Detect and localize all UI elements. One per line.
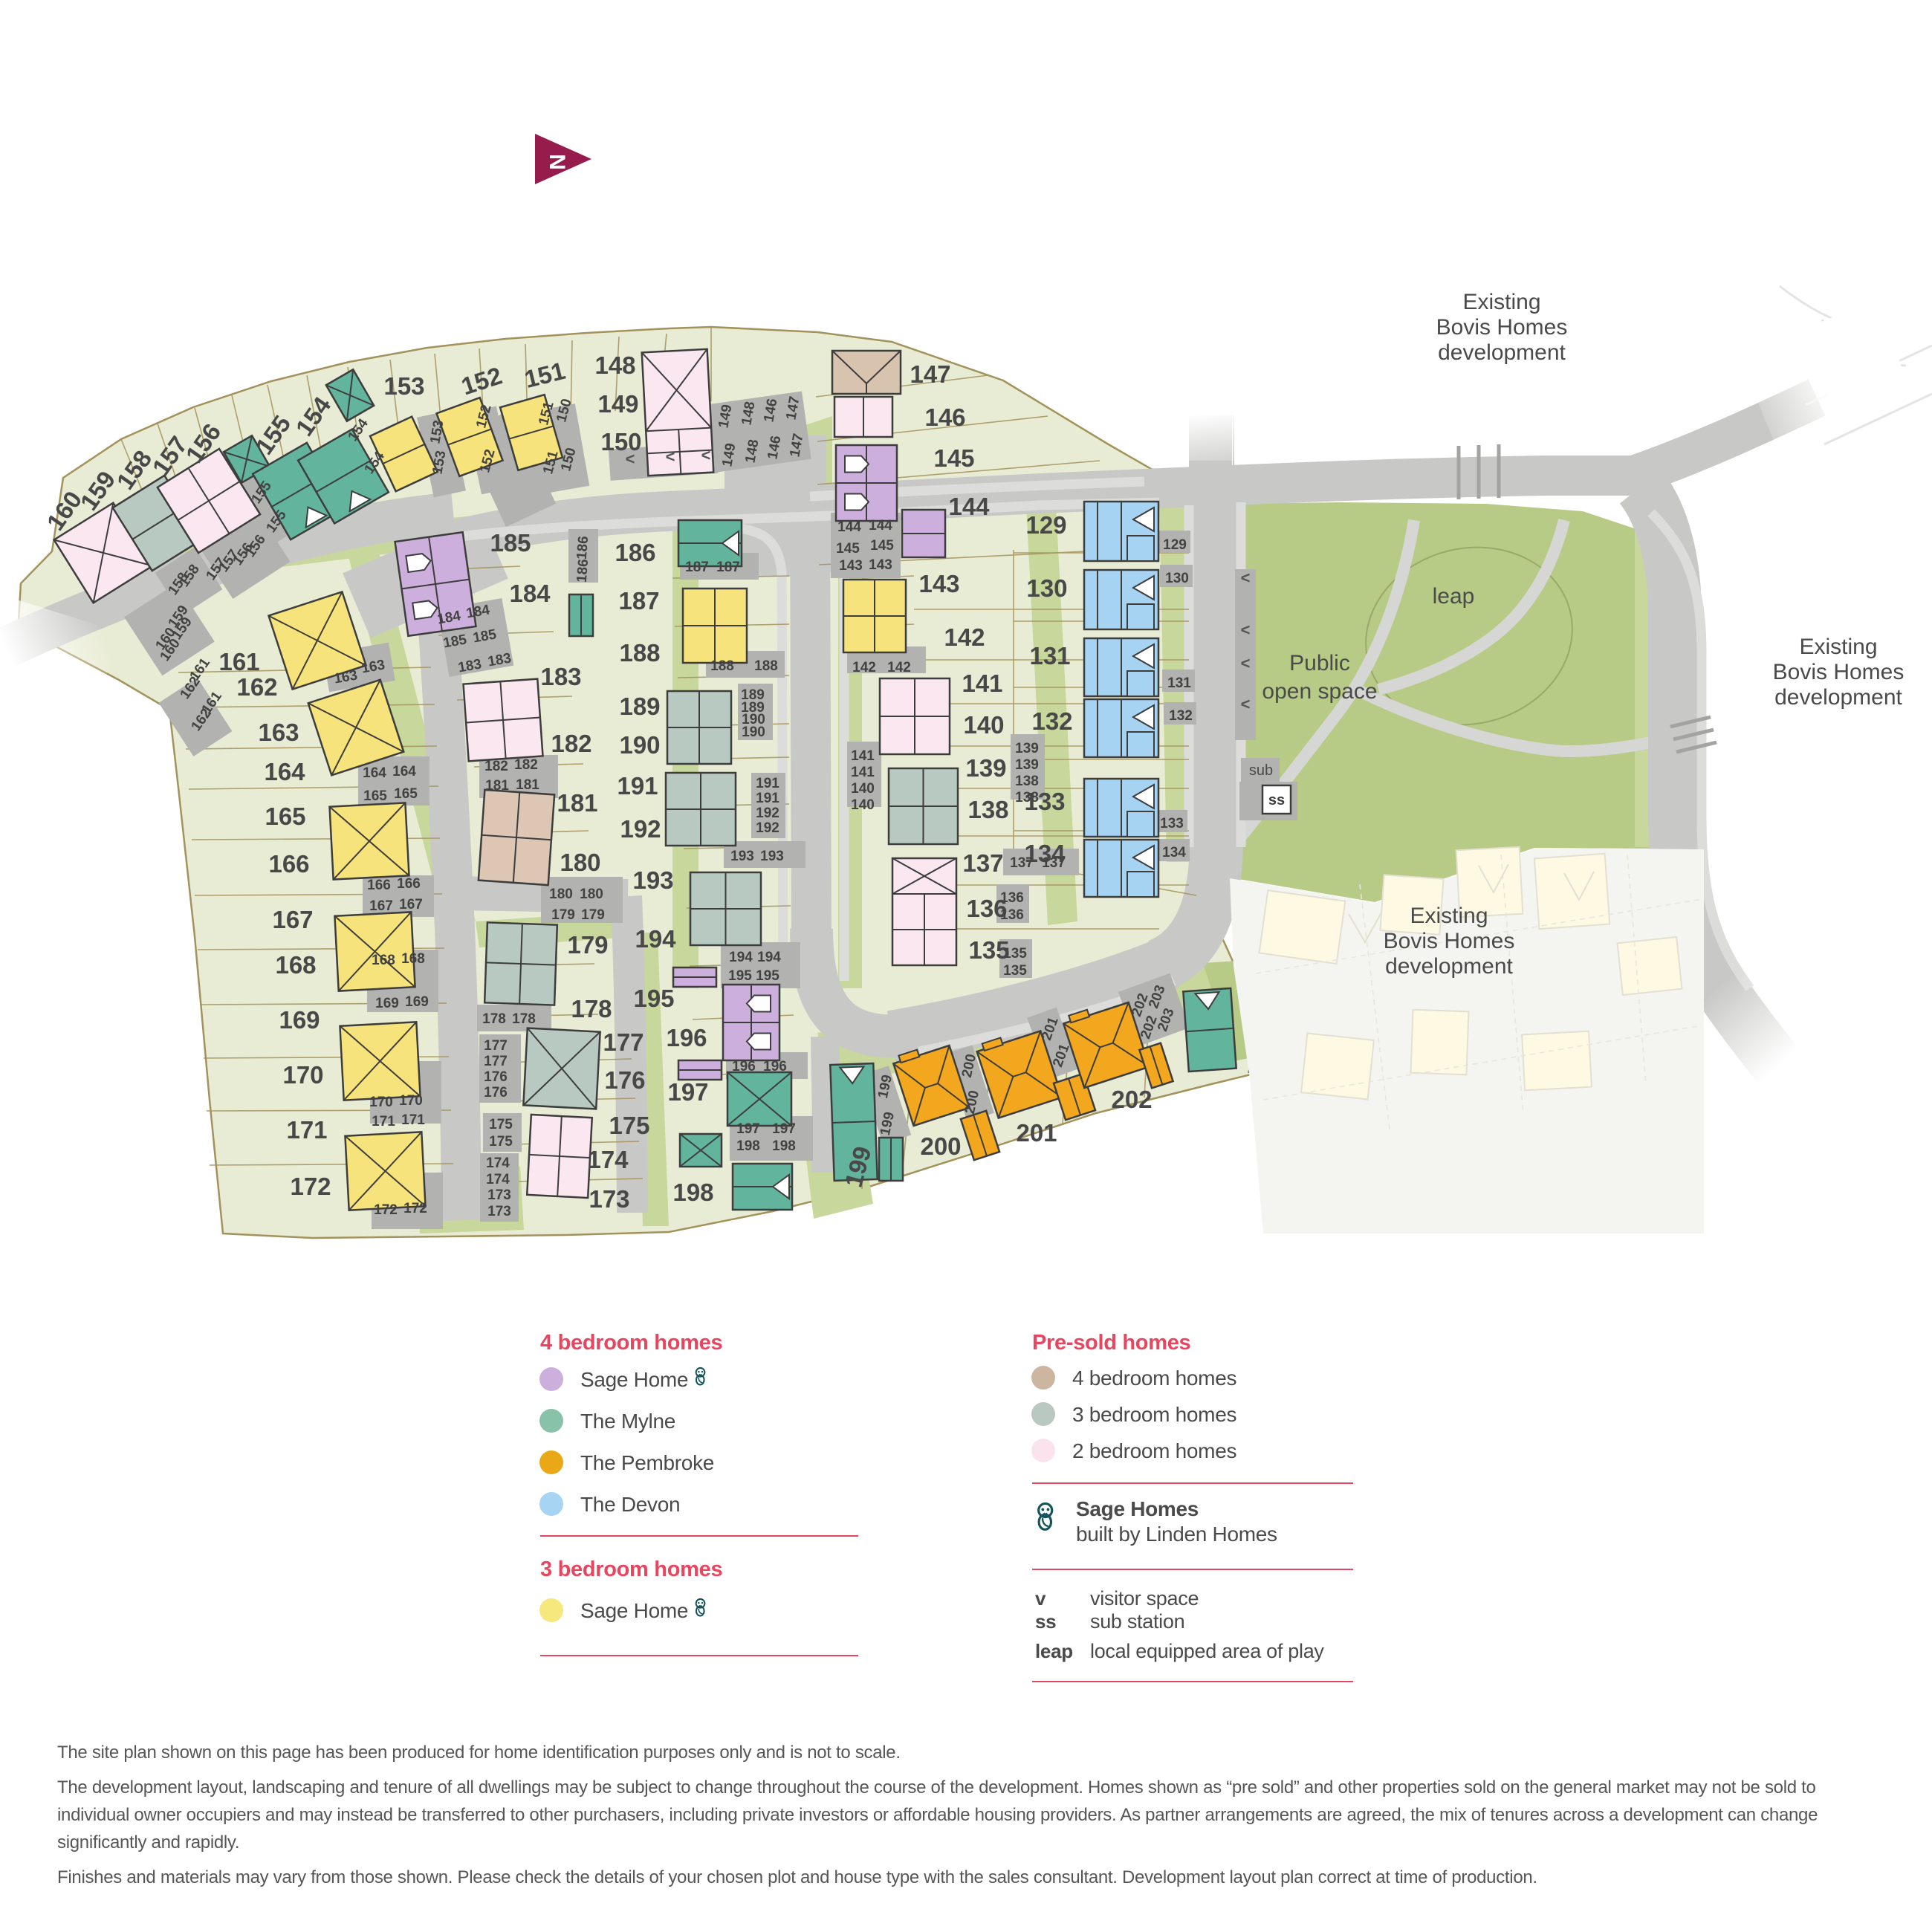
svg-text:166: 166 xyxy=(268,850,309,878)
svg-text:leap: leap xyxy=(1433,584,1475,609)
svg-text:4 bedroom homes: 4 bedroom homes xyxy=(540,1331,722,1355)
svg-text:180: 180 xyxy=(549,886,573,902)
svg-text:162: 162 xyxy=(236,673,277,701)
svg-text:164: 164 xyxy=(392,764,416,779)
svg-text:The Devon: The Devon xyxy=(580,1493,680,1516)
svg-text:194: 194 xyxy=(729,950,753,965)
svg-text:sub station: sub station xyxy=(1090,1610,1184,1633)
svg-text:177: 177 xyxy=(603,1028,644,1056)
svg-text:143: 143 xyxy=(918,570,959,597)
svg-text:3 bedroom homes: 3 bedroom homes xyxy=(1072,1403,1236,1426)
svg-text:139: 139 xyxy=(965,754,1006,782)
svg-text:186: 186 xyxy=(615,539,655,566)
svg-text:167: 167 xyxy=(399,897,423,912)
svg-text:131: 131 xyxy=(1029,642,1070,670)
svg-text:163: 163 xyxy=(258,719,299,746)
svg-text:175: 175 xyxy=(609,1112,649,1139)
svg-text:194: 194 xyxy=(635,925,676,953)
svg-text:Sage Homes: Sage Homes xyxy=(1076,1497,1199,1520)
svg-text:143: 143 xyxy=(869,557,892,573)
svg-text:130: 130 xyxy=(1026,574,1067,602)
svg-text:165: 165 xyxy=(394,786,418,802)
svg-text:3 bedroom homes: 3 bedroom homes xyxy=(540,1557,722,1581)
svg-text:178: 178 xyxy=(512,1011,536,1027)
svg-text:196: 196 xyxy=(763,1059,787,1074)
svg-text:172: 172 xyxy=(403,1201,427,1216)
svg-text:198: 198 xyxy=(772,1138,796,1154)
svg-text:Existing: Existing xyxy=(1462,290,1540,314)
svg-text:168: 168 xyxy=(372,953,395,968)
svg-text:167: 167 xyxy=(272,906,313,933)
svg-text:The Pembroke: The Pembroke xyxy=(580,1451,714,1474)
svg-text:182: 182 xyxy=(551,730,591,757)
svg-text:2 bedroom homes: 2 bedroom homes xyxy=(1072,1439,1236,1462)
svg-text:145: 145 xyxy=(933,444,974,472)
svg-text:Existing: Existing xyxy=(1799,635,1877,659)
svg-text:201: 201 xyxy=(1016,1119,1057,1147)
svg-text:165: 165 xyxy=(363,788,387,804)
svg-text:148: 148 xyxy=(594,351,635,379)
svg-text:135: 135 xyxy=(1003,946,1027,962)
svg-text:Bovis Homes: Bovis Homes xyxy=(1436,315,1568,340)
svg-text:166: 166 xyxy=(367,878,391,893)
svg-text:186: 186 xyxy=(574,558,592,583)
svg-text:The site plan shown on this pa: The site plan shown on this page has bee… xyxy=(57,1743,901,1763)
svg-text:172: 172 xyxy=(374,1202,398,1218)
svg-text:168: 168 xyxy=(401,951,425,967)
svg-text:164: 164 xyxy=(363,765,386,781)
svg-text:138: 138 xyxy=(1015,790,1039,805)
svg-text:138: 138 xyxy=(967,796,1008,823)
svg-text:142: 142 xyxy=(944,623,985,651)
svg-text:174: 174 xyxy=(486,1155,510,1171)
svg-text:141: 141 xyxy=(851,748,875,764)
svg-text:142: 142 xyxy=(852,660,876,675)
svg-text:Sage Home: Sage Home xyxy=(580,1599,688,1622)
svg-text:Pre-sold homes: Pre-sold homes xyxy=(1032,1331,1190,1355)
svg-text:172: 172 xyxy=(290,1173,331,1200)
svg-text:186: 186 xyxy=(574,535,592,560)
svg-text:140: 140 xyxy=(851,781,875,797)
svg-text:193: 193 xyxy=(730,849,754,864)
svg-text:137: 137 xyxy=(1042,855,1066,871)
svg-text:<: < xyxy=(626,450,635,468)
svg-text:170: 170 xyxy=(369,1095,393,1110)
svg-text:195: 195 xyxy=(756,968,779,984)
svg-text:171: 171 xyxy=(372,1114,395,1129)
svg-text:187: 187 xyxy=(685,560,709,575)
svg-text:193: 193 xyxy=(760,849,784,864)
svg-text:174: 174 xyxy=(486,1172,510,1187)
svg-text:190: 190 xyxy=(742,724,765,740)
svg-text:sub: sub xyxy=(1249,762,1273,779)
svg-text:140: 140 xyxy=(851,797,875,813)
svg-text:161: 161 xyxy=(218,648,259,675)
svg-text:170: 170 xyxy=(282,1061,323,1089)
svg-text:individual owner occupiers and: individual owner occupiers and may inste… xyxy=(57,1805,1818,1825)
svg-text:173: 173 xyxy=(589,1185,629,1213)
svg-text:183: 183 xyxy=(540,663,581,690)
svg-text:195: 195 xyxy=(633,985,674,1012)
svg-text:development: development xyxy=(1774,685,1902,710)
svg-text:<: < xyxy=(701,446,711,464)
svg-text:182: 182 xyxy=(514,757,538,773)
svg-text:<: < xyxy=(1241,654,1251,672)
svg-text:196: 196 xyxy=(666,1024,707,1051)
svg-text:145: 145 xyxy=(870,538,894,554)
svg-text:191: 191 xyxy=(756,791,779,806)
svg-text:Bovis Homes: Bovis Homes xyxy=(1773,660,1905,684)
svg-text:171: 171 xyxy=(401,1112,425,1128)
svg-text:Bovis Homes: Bovis Homes xyxy=(1384,929,1515,953)
svg-text:Public: Public xyxy=(1289,651,1350,675)
svg-text:139: 139 xyxy=(1015,741,1039,756)
svg-text:178: 178 xyxy=(482,1011,506,1027)
svg-text:140: 140 xyxy=(963,711,1004,739)
svg-text:180: 180 xyxy=(580,886,603,902)
svg-text:175: 175 xyxy=(489,1134,513,1150)
svg-text:173: 173 xyxy=(487,1187,511,1203)
svg-text:143: 143 xyxy=(839,558,863,574)
svg-text:open space: open space xyxy=(1262,679,1377,704)
svg-text:179: 179 xyxy=(551,907,575,923)
svg-text:ss: ss xyxy=(1035,1610,1056,1633)
svg-text:168: 168 xyxy=(275,951,316,979)
svg-text:<: < xyxy=(1241,620,1251,639)
svg-text:192: 192 xyxy=(756,805,779,821)
svg-text:200: 200 xyxy=(920,1132,961,1160)
svg-text:169: 169 xyxy=(405,994,429,1010)
svg-text:198: 198 xyxy=(736,1138,760,1154)
svg-text:ss: ss xyxy=(1268,792,1285,808)
svg-text:181: 181 xyxy=(516,777,539,793)
svg-text:139: 139 xyxy=(1015,757,1039,773)
svg-text:194: 194 xyxy=(757,950,781,965)
svg-text:The development layout, landsc: The development layout, landscaping and … xyxy=(57,1777,1816,1798)
svg-text:170: 170 xyxy=(399,1093,423,1109)
svg-text:193: 193 xyxy=(632,866,673,894)
svg-text:188: 188 xyxy=(710,658,734,674)
svg-text:136: 136 xyxy=(1000,890,1024,906)
svg-text:190: 190 xyxy=(619,731,660,759)
svg-text:188: 188 xyxy=(754,658,778,674)
svg-text:Existing: Existing xyxy=(1410,904,1488,928)
svg-text:145: 145 xyxy=(836,541,860,557)
svg-text:169: 169 xyxy=(375,996,399,1011)
svg-text:built by Linden Homes: built by Linden Homes xyxy=(1076,1523,1277,1546)
svg-text:153: 153 xyxy=(383,372,424,400)
svg-text:significantly and rapidly.: significantly and rapidly. xyxy=(57,1832,239,1852)
svg-text:132: 132 xyxy=(1031,707,1072,735)
svg-text:192: 192 xyxy=(620,815,661,843)
svg-text:191: 191 xyxy=(756,776,779,791)
svg-text:197: 197 xyxy=(736,1121,760,1137)
svg-text:179: 179 xyxy=(567,931,608,959)
svg-text:141: 141 xyxy=(962,670,1002,697)
svg-text:144: 144 xyxy=(948,493,990,520)
svg-text:191: 191 xyxy=(617,772,658,800)
svg-text:local equipped area of play: local equipped area of play xyxy=(1090,1640,1324,1662)
svg-text:Finishes and materials may var: Finishes and materials may vary from tho… xyxy=(57,1867,1537,1887)
svg-text:181: 181 xyxy=(557,789,597,817)
svg-text:146: 146 xyxy=(924,403,965,431)
svg-text:150: 150 xyxy=(600,428,641,456)
svg-text:136: 136 xyxy=(1000,907,1024,923)
svg-text:177: 177 xyxy=(484,1038,508,1054)
svg-text:187: 187 xyxy=(716,560,740,575)
svg-text:184: 184 xyxy=(509,580,551,607)
svg-text:4 bedroom homes: 4 bedroom homes xyxy=(1072,1367,1236,1390)
svg-text:180: 180 xyxy=(560,849,600,876)
svg-text:<: < xyxy=(666,447,675,466)
svg-text:182: 182 xyxy=(484,759,508,774)
svg-text:129: 129 xyxy=(1025,511,1066,539)
svg-text:179: 179 xyxy=(581,907,605,923)
svg-text:167: 167 xyxy=(369,898,393,914)
svg-text:144: 144 xyxy=(837,519,861,535)
svg-text:development: development xyxy=(1385,954,1513,979)
svg-text:138: 138 xyxy=(1015,774,1039,789)
svg-text:164: 164 xyxy=(264,758,305,785)
svg-text:181: 181 xyxy=(485,778,509,794)
svg-text:141: 141 xyxy=(851,765,875,780)
svg-text:176: 176 xyxy=(604,1066,645,1094)
svg-text:137: 137 xyxy=(962,849,1003,877)
svg-text:197: 197 xyxy=(772,1121,796,1137)
svg-text:175: 175 xyxy=(489,1117,513,1132)
svg-text:132: 132 xyxy=(1169,708,1193,724)
svg-text:visitor space: visitor space xyxy=(1090,1587,1199,1610)
svg-text:177: 177 xyxy=(484,1054,508,1069)
svg-text:134: 134 xyxy=(1162,845,1186,860)
svg-text:149: 149 xyxy=(597,390,638,418)
svg-text:The Mylne: The Mylne xyxy=(580,1410,675,1433)
svg-text:133: 133 xyxy=(1160,816,1184,832)
svg-text:185: 185 xyxy=(490,529,531,557)
svg-text:137: 137 xyxy=(1010,855,1034,871)
svg-text:202: 202 xyxy=(1111,1086,1152,1113)
svg-text:195: 195 xyxy=(728,968,752,984)
svg-text:189: 189 xyxy=(619,693,660,720)
svg-text:131: 131 xyxy=(1167,675,1191,691)
svg-text:169: 169 xyxy=(279,1006,320,1034)
svg-text:development: development xyxy=(1438,340,1566,365)
svg-text:187: 187 xyxy=(618,587,659,615)
svg-text:188: 188 xyxy=(619,639,660,667)
svg-text:leap: leap xyxy=(1035,1640,1073,1662)
svg-text:166: 166 xyxy=(397,876,421,892)
svg-text:198: 198 xyxy=(672,1179,713,1206)
svg-text:165: 165 xyxy=(265,803,305,830)
svg-text:N: N xyxy=(545,154,569,170)
svg-text:147: 147 xyxy=(910,360,950,388)
svg-text:130: 130 xyxy=(1165,571,1189,586)
svg-text:144: 144 xyxy=(869,518,892,534)
svg-text:176: 176 xyxy=(484,1069,508,1085)
svg-text:174: 174 xyxy=(587,1146,629,1173)
svg-text:<: < xyxy=(1241,695,1251,713)
svg-text:<: < xyxy=(1241,568,1251,587)
svg-text:196: 196 xyxy=(732,1059,756,1074)
svg-text:129: 129 xyxy=(1163,537,1187,553)
svg-text:176: 176 xyxy=(484,1085,508,1100)
svg-text:173: 173 xyxy=(487,1204,511,1219)
svg-text:Sage Home: Sage Home xyxy=(580,1368,688,1391)
svg-text:v: v xyxy=(1035,1587,1046,1610)
svg-text:178: 178 xyxy=(571,995,612,1022)
svg-text:192: 192 xyxy=(756,820,779,836)
svg-text:197: 197 xyxy=(667,1078,708,1106)
svg-text:171: 171 xyxy=(286,1116,327,1144)
svg-text:142: 142 xyxy=(887,660,911,675)
svg-text:135: 135 xyxy=(1003,963,1027,979)
